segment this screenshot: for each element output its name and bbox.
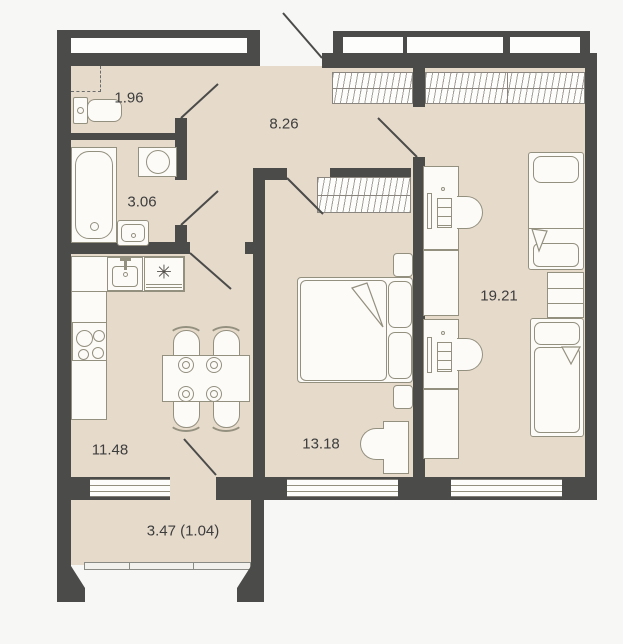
railing-divider (193, 563, 194, 569)
stove-module-lines (146, 284, 182, 288)
window-frame-line (451, 491, 562, 492)
cabinet (423, 389, 459, 459)
living-window (451, 479, 562, 497)
floor-plan: ✳ (0, 0, 623, 644)
room-label-bathroom: 3.06 (127, 194, 156, 211)
room-label-bedroom: 13.18 (302, 436, 340, 453)
monitor-icon (427, 193, 432, 229)
wall-bedroom-left (253, 168, 265, 477)
window-frame-line (451, 485, 562, 486)
room-label-balcony: 3.47 (1.04) (147, 523, 220, 540)
plate-inner (182, 361, 190, 369)
nightstand (393, 253, 413, 277)
burner-icon (78, 349, 89, 360)
bed-blanket (300, 280, 387, 381)
plate-inner (210, 361, 218, 369)
bathtub-drain (90, 222, 99, 231)
bay-window-pane (343, 37, 403, 54)
faucet-stem (124, 261, 127, 270)
entrance-door-swing (283, 13, 322, 58)
chair-back-arc (208, 326, 244, 348)
chair-back-arc (208, 410, 244, 432)
burner-icon (93, 330, 105, 342)
window-frame-line (90, 485, 170, 486)
blanket-edge-line (529, 228, 583, 229)
burner-icon (76, 330, 93, 347)
bay-window-pane (407, 37, 503, 54)
burner-icon (92, 347, 104, 359)
faucet-drain (123, 272, 128, 277)
hallway-wardrobe (332, 72, 413, 104)
plate-inner (182, 390, 190, 398)
pillow (388, 332, 412, 379)
window-frame-line (90, 491, 170, 492)
window-frame-line (287, 485, 398, 486)
railing-divider (129, 563, 130, 569)
wall-wc-bottom (57, 133, 187, 140)
washing-machine-drum (146, 150, 170, 174)
pillow (388, 281, 412, 328)
cabinet (423, 250, 459, 316)
sink-drain (131, 233, 136, 238)
wall-wc-door-stub (175, 118, 187, 140)
monitor-icon (427, 337, 432, 373)
wall-right-outer (585, 57, 597, 500)
nightstand (393, 385, 413, 409)
shelf-divider (548, 288, 583, 289)
computer-icon (437, 198, 452, 228)
balcony-wall-chamfer-left (71, 566, 85, 602)
wardrobe-divider (507, 73, 508, 103)
room-label-living: 19.21 (480, 288, 518, 305)
balcony-railing (84, 562, 251, 570)
desk-lamp-dot (441, 187, 445, 191)
room-label-wc: 1.96 (114, 90, 143, 107)
bay-window-pane (510, 37, 580, 54)
chair-back-arc (168, 410, 204, 432)
stove-symbol: ✳ (156, 262, 172, 285)
computer-icon (437, 342, 452, 372)
bed-blanket (534, 347, 580, 433)
wall-bedroom-top-corner (253, 168, 287, 180)
kitchen-window (90, 479, 170, 497)
desk-lamp-dot (441, 331, 445, 335)
wall-left-outer (57, 30, 71, 602)
pillow (533, 156, 579, 183)
bedroom-side-table (383, 421, 409, 474)
duct-dashed-outline (71, 66, 101, 92)
window-frame-line (287, 491, 398, 492)
bedroom-chair (360, 428, 384, 460)
wall-niche (66, 38, 247, 53)
pillow (534, 322, 580, 345)
shelf-divider (548, 303, 583, 304)
wall-living-door-stub (413, 53, 425, 107)
balcony-wall-chamfer-right (237, 566, 251, 602)
room-label-hallway: 8.26 (269, 116, 298, 133)
bedroom-window (287, 479, 398, 497)
wall-top-main (322, 53, 597, 68)
bedroom-wardrobe (317, 177, 411, 213)
toilet-flush-button (77, 107, 84, 114)
balcony-wall-right (251, 500, 264, 602)
room-label-kitchen: 11.48 (92, 442, 128, 459)
chair-back-arc (168, 326, 204, 348)
shelf-unit (547, 272, 584, 318)
balcony-door-opening (170, 477, 216, 500)
living-wardrobe (425, 72, 585, 104)
plate-inner (210, 390, 218, 398)
folded-blanket (533, 243, 579, 267)
